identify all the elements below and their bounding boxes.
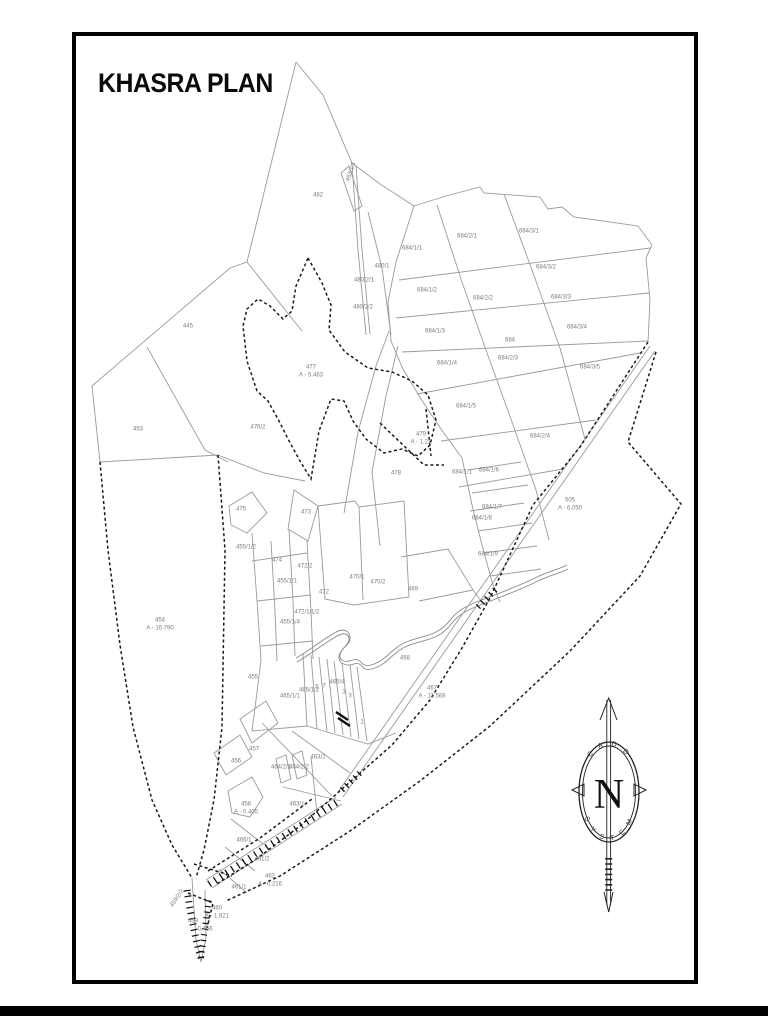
- khasra-plan-page: N C A D D S Y S T E M 482483/1/144545347…: [0, 0, 768, 1024]
- parcel-lines: [92, 62, 652, 962]
- page-title: KHASRA PLAN: [98, 68, 273, 99]
- compass-bottom-text: S Y S T E M: [583, 816, 636, 843]
- scan-edge-bar: [0, 1006, 768, 1016]
- road-lines: [206, 346, 655, 888]
- khasra-map: N C A D D S Y S T E M: [0, 0, 768, 1024]
- map-frame: N C A D D S Y S T E M 482483/1/144545347…: [72, 32, 698, 984]
- compass-rose: N C A D D S Y S T E M: [572, 698, 646, 912]
- stream: [296, 565, 568, 670]
- compass-top-text: C A D D: [586, 741, 631, 759]
- compass-n-letter: N: [594, 772, 624, 818]
